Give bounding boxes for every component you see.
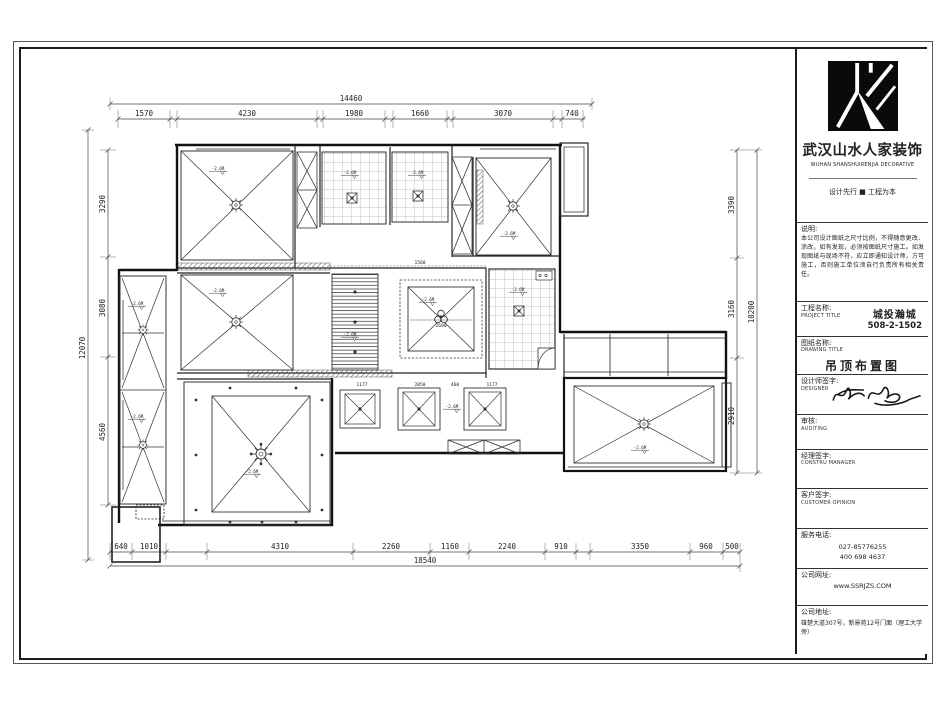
- designer-section: 设计师签字: DESIGNER: [797, 375, 928, 415]
- drawing-title-section: 图纸名称: DRAWING TITLE 吊顶布置图: [797, 337, 928, 376]
- level-mark: -2.6M: [503, 231, 516, 236]
- level-mark: -2.6M: [411, 170, 424, 175]
- company-logo-icon: [828, 61, 898, 131]
- drawing-label-en: DRAWING TITLE: [801, 347, 924, 353]
- notes-label: 说明:: [801, 225, 924, 234]
- phone-label: 服务电话:: [801, 531, 924, 540]
- dim-inner-2690: 2690: [435, 323, 446, 329]
- dim-right-1: 3390: [727, 195, 736, 214]
- dim-right-total: 10200: [747, 300, 756, 323]
- dim-left-total: 12070: [78, 336, 87, 359]
- pendant-lamp-icon: [435, 310, 448, 322]
- ceiling-lamp-icon: [229, 198, 243, 212]
- manager-label-en: CONSTRU MANAGER: [801, 460, 924, 466]
- customer-label-cn: 客户签字:: [801, 491, 924, 500]
- dim-left-1: 3290: [98, 194, 107, 213]
- level-mark: -2.6M: [212, 288, 225, 293]
- level-mark: -2.6M: [212, 166, 225, 171]
- customer-label-en: CUSTOMER OPINION: [801, 500, 924, 506]
- dim-top-1: 1570: [135, 109, 154, 118]
- dim-top-2: 4230: [238, 109, 257, 118]
- project-name: 城投瀚城: [868, 306, 922, 321]
- phone-number-2: 400 698 4637: [801, 553, 924, 563]
- dim-top-5: 3070: [494, 109, 513, 118]
- dim-top-3: 1980: [345, 109, 364, 118]
- dim-top-6: 740: [565, 109, 579, 118]
- dim-bot-2: 1010: [140, 542, 159, 551]
- ceiling-fan-icon: [137, 324, 148, 335]
- corridor-coffer-1: [340, 390, 380, 428]
- website-label: 公司网址:: [801, 571, 924, 580]
- dim-bot-4: 2260: [382, 542, 401, 551]
- phone-section: 服务电话: 027-85776255 400 698 4637: [797, 529, 928, 569]
- dim-left-3: 4560: [98, 422, 107, 441]
- title-block: 武汉山水人家装饰 WUHAN SHANSHUIRENJIA DECORATIVE…: [795, 49, 928, 654]
- notes-section: 说明: 本公司设计图纸之尺寸比例，不得随意更改、涂改，如有发现，必须按图纸尺寸施…: [797, 223, 928, 302]
- room-bedroom-top-left: [181, 151, 293, 260]
- room-bedroom-top-right: [476, 158, 551, 255]
- level-mark: -2.6M: [344, 332, 357, 337]
- level-mark: -2.6M: [246, 469, 259, 474]
- dim-bot-7: 910: [554, 542, 568, 551]
- website-url: www.SSRJZS.COM: [801, 582, 924, 592]
- dim-bot-9: 960: [699, 542, 713, 551]
- title-block-logo-section: 武汉山水人家装饰 WUHAN SHANSHUIRENJIA DECORATIVE…: [797, 49, 928, 223]
- room-kitchen-grid-2: [392, 152, 448, 222]
- dimension-bottom-labels: 18540 640 1010 4310 2260 1160 2240 910 3…: [114, 542, 739, 565]
- drawing-title: 吊顶布置图: [801, 357, 924, 374]
- dim-inner-1177a: 1177: [356, 382, 367, 388]
- dim-right-3: 2910: [727, 406, 736, 425]
- ceiling-level-marks: -2.6M -2.6M -2.6M -2.6M -2.6M -2.6M -2.6…: [128, 166, 649, 478]
- customer-section: 客户签字: CUSTOMER OPINION: [797, 489, 928, 529]
- dimension-left: [82, 128, 116, 563]
- address-section: 公司地址: 雄楚大道307号，新景苑12号门面（理工大学旁）: [797, 606, 928, 654]
- ceiling-fan-icon: [137, 439, 148, 450]
- kitchen-lamp-icon: [347, 193, 357, 203]
- dim-bot-8: 3350: [631, 542, 650, 551]
- level-mark: -2.6M: [422, 297, 435, 302]
- company-name-cn: 武汉山水人家装饰: [803, 139, 923, 160]
- room-dining: [400, 280, 482, 358]
- project-section: 工程名称: PROJECT TITLE 城投瀚城 508-2-1502: [797, 302, 928, 337]
- audit-label-cn: 审核:: [801, 417, 924, 426]
- notes-text: 本公司设计图纸之尺寸比例，不得随意更改、涂改，如有发现，必须按图纸尺寸施工。如发…: [801, 234, 924, 279]
- ceiling-lamp-icon: [506, 199, 520, 213]
- room-kitchen-grid-1: [322, 152, 386, 224]
- address-value: 雄楚大道307号，新景苑12号门面（理工大学旁）: [801, 620, 924, 637]
- dim-bottom-total: 18540: [414, 556, 437, 565]
- dim-left-2: 3080: [98, 298, 107, 317]
- drawing-label-cn: 图纸名称:: [801, 339, 924, 348]
- dimension-top-labels: 14460 1570 4230 1980 1660 3070 740: [135, 94, 579, 118]
- audit-label-en: AUDITING: [801, 426, 924, 432]
- dim-inner-1177b: 1177: [486, 382, 497, 388]
- level-mark: -2.6M: [344, 170, 357, 175]
- level-mark: -2.6M: [446, 404, 459, 409]
- corridor-coffer-3: [464, 388, 506, 430]
- entry-louver-ceiling: [332, 274, 378, 370]
- room-bedroom-mid-left: [181, 275, 293, 370]
- dim-bot-5: 1160: [441, 542, 460, 551]
- project-number: 508-2-1502: [868, 321, 922, 331]
- level-mark: -2.6M: [131, 414, 144, 419]
- dimension-left-labels: 12070 3290 3080 4560: [78, 194, 107, 441]
- company-slogan: 设计先行 ■ 工程为本: [809, 178, 917, 197]
- dim-inner-460: 460: [451, 382, 460, 388]
- manager-label-cn: 经理签字:: [801, 452, 924, 461]
- manager-section: 经理签字: CONSTRU MANAGER: [797, 450, 928, 490]
- company-name-en: WUHAN SHANSHUIRENJIA DECORATIVE: [811, 162, 915, 168]
- level-mark: -2.6M: [131, 301, 144, 306]
- dim-inner-2050: 2050: [414, 382, 425, 388]
- phone-number-1: 027-85776255: [801, 543, 924, 553]
- website-section: 公司网址: www.SSRJZS.COM: [797, 569, 928, 607]
- designer-signature: [825, 377, 925, 415]
- dim-bot-1: 640: [114, 542, 128, 551]
- ceiling-lamp-icon: [229, 315, 243, 329]
- chandelier-icon: [250, 443, 271, 464]
- dim-bot-6: 2240: [498, 542, 517, 551]
- dim-right-2: 3160: [727, 299, 736, 318]
- drawing-sheet: 14460 1570 4230 1980 1660 3070 740 18540…: [0, 0, 938, 704]
- audit-section: 审核: AUDITING: [797, 415, 928, 450]
- room-bathroom: [489, 269, 555, 369]
- corridor-coffer-2: [398, 388, 440, 430]
- dim-bot-10: 500: [725, 542, 739, 551]
- dim-top-total: 14460: [340, 94, 363, 103]
- level-mark: -2.6M: [634, 445, 647, 450]
- address-label: 公司地址:: [801, 608, 924, 617]
- dim-inner-1560: 1560: [414, 260, 425, 266]
- bath-lamp-icon: [514, 306, 524, 316]
- dim-top-4: 1660: [411, 109, 430, 118]
- dim-bot-3: 4310: [271, 542, 290, 551]
- room-balcony-left: [120, 276, 166, 504]
- level-mark: -2.6M: [512, 287, 525, 292]
- room-living: [184, 382, 330, 525]
- kitchen-lamp-icon: [413, 191, 423, 201]
- ceiling-lamp-icon: [637, 417, 651, 431]
